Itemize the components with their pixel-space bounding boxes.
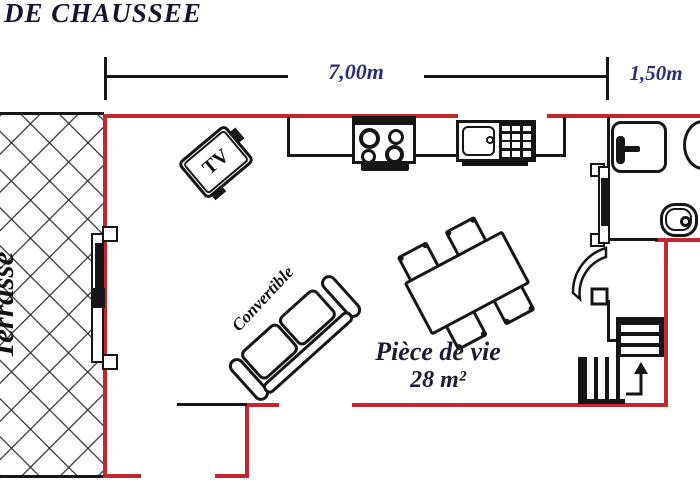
window-cap <box>102 354 118 370</box>
dimension-label-right: 1,50m <box>610 61 700 86</box>
dimension-tick-left <box>104 57 107 100</box>
floor-plan: DE CHAUSSEE 7,00m 1,50m Terrasse <box>0 0 700 500</box>
shower-faucet <box>623 146 640 152</box>
basin-icon <box>683 120 700 170</box>
sink-icon <box>456 120 536 162</box>
wall-terrace-stub <box>103 474 141 478</box>
wall-top-right <box>547 114 700 118</box>
wall-bathroom-left-upper <box>607 117 610 167</box>
stairs-upper-flight-icon <box>616 317 664 357</box>
dining-set <box>403 230 530 336</box>
wall-right <box>664 239 668 407</box>
wall-entry-top-black <box>177 403 247 406</box>
window-sash <box>601 178 608 226</box>
toilet-icon <box>660 203 698 237</box>
window-sash <box>93 288 105 308</box>
wall-entry-stub <box>215 474 249 478</box>
stove-burner <box>359 128 380 149</box>
wall-entry-vertical <box>245 403 249 478</box>
door-swing-icon <box>568 243 612 307</box>
sink-front-bar <box>462 162 528 166</box>
stairs-lower-flight-icon <box>578 357 625 404</box>
shower-icon <box>611 121 667 173</box>
room-area-label: 28 m² <box>363 367 513 394</box>
stove-burner <box>388 129 404 145</box>
tv-icon: TV <box>177 124 255 201</box>
sink-faucet <box>486 136 494 144</box>
terrace-window-icon <box>89 226 119 372</box>
dimension-line-main-right <box>424 75 608 78</box>
wall-bathroom-bottom-red <box>655 238 700 242</box>
dimension-tick-right <box>606 57 609 100</box>
stove-front-bar <box>361 161 409 171</box>
dimension-label-main: 7,00m <box>288 59 424 85</box>
terrace-label: Terrasse <box>0 208 21 403</box>
terrace-wall-top <box>0 112 104 115</box>
page-title: DE CHAUSSEE <box>4 0 202 29</box>
bathroom-window-icon <box>590 163 616 249</box>
stove-icon <box>352 116 416 164</box>
room-name-label: Pièce de vie <box>353 337 523 367</box>
toilet-flush <box>680 216 691 227</box>
window-cap <box>102 226 118 242</box>
sink-drainer-grid <box>499 123 533 159</box>
sofa-icon <box>224 270 366 405</box>
stair-direction-arrow-icon <box>622 358 650 398</box>
dimension-line-main-left <box>105 75 288 78</box>
terrace-wall-bottom <box>0 475 104 478</box>
